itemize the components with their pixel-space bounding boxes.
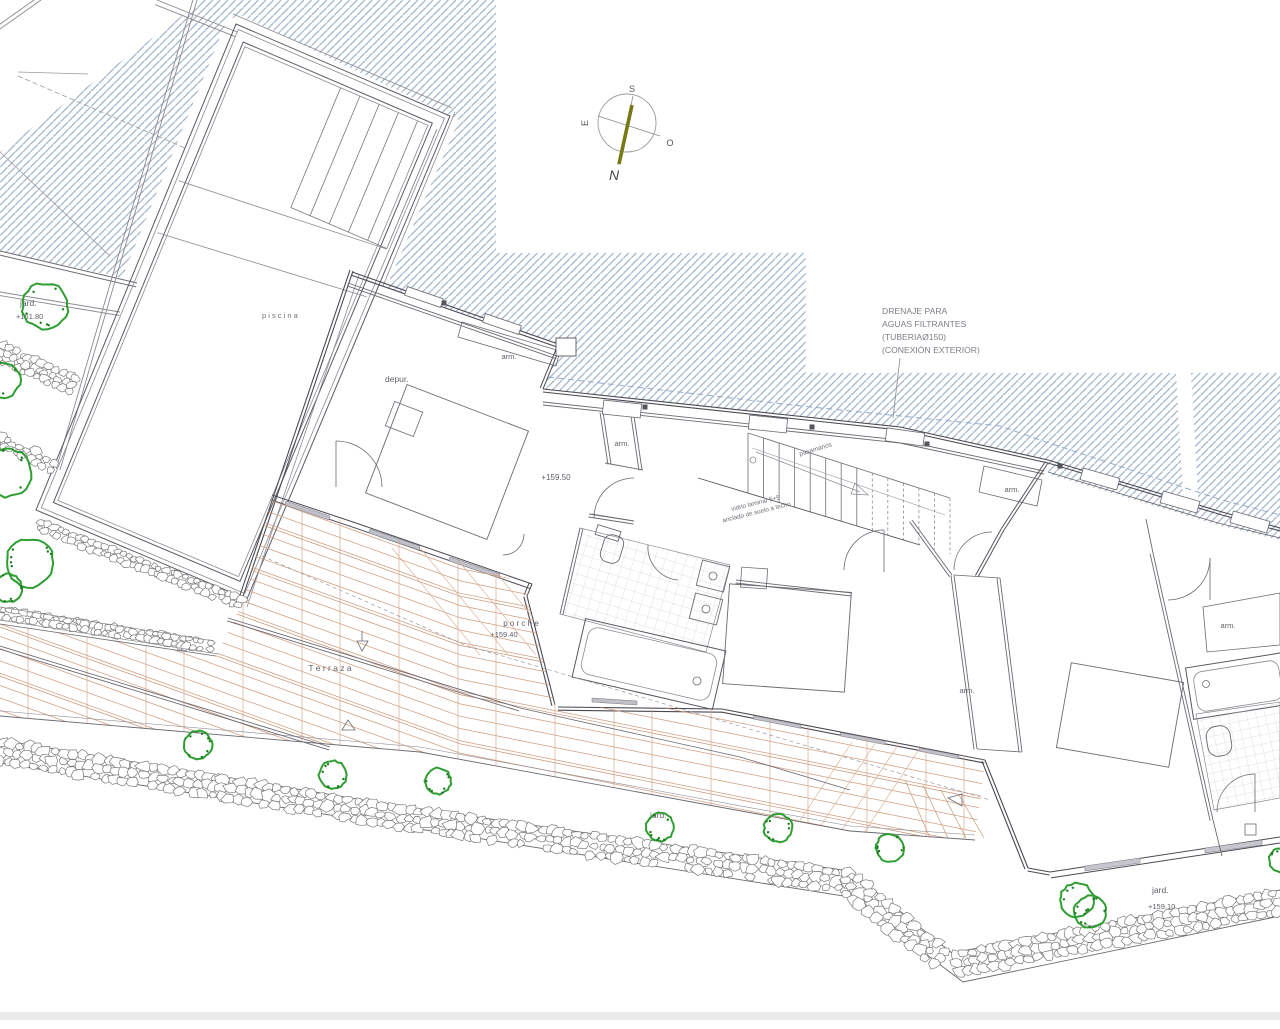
svg-text:N: N xyxy=(609,167,620,183)
svg-text:arm.: arm. xyxy=(1221,621,1236,630)
svg-text:depur.: depur. xyxy=(385,374,409,384)
svg-text:arm.: arm. xyxy=(615,439,630,448)
svg-text:S: S xyxy=(629,84,635,94)
svg-text:(CONEXIÓN EXTERIOR): (CONEXIÓN EXTERIOR) xyxy=(882,345,980,355)
svg-text:jard.: jard. xyxy=(1151,885,1169,895)
svg-text:+161.80: +161.80 xyxy=(16,312,43,321)
svg-text:O: O xyxy=(666,138,673,148)
svg-text:p o r c h e: p o r c h e xyxy=(503,619,539,628)
svg-text:arm.: arm. xyxy=(960,686,975,695)
svg-text:(TUBERIAØ150): (TUBERIAØ150) xyxy=(882,332,946,342)
svg-text:T e r r a z a: T e r r a z a xyxy=(308,663,352,673)
svg-text:AGUAS FILTRANTES: AGUAS FILTRANTES xyxy=(882,319,967,329)
svg-text:arm.: arm. xyxy=(502,352,517,361)
svg-text:p i s c i n a: p i s c i n a xyxy=(262,311,299,320)
svg-text:+159.40: +159.40 xyxy=(490,630,517,639)
svg-text:jard.: jard. xyxy=(19,298,37,308)
svg-text:+159.10: +159.10 xyxy=(1148,902,1175,911)
svg-text:arm.: arm. xyxy=(1005,485,1020,494)
svg-text:DRENAJE PARA: DRENAJE PARA xyxy=(882,306,948,316)
svg-text:E: E xyxy=(580,120,590,126)
svg-text:+159.50: +159.50 xyxy=(541,473,571,482)
